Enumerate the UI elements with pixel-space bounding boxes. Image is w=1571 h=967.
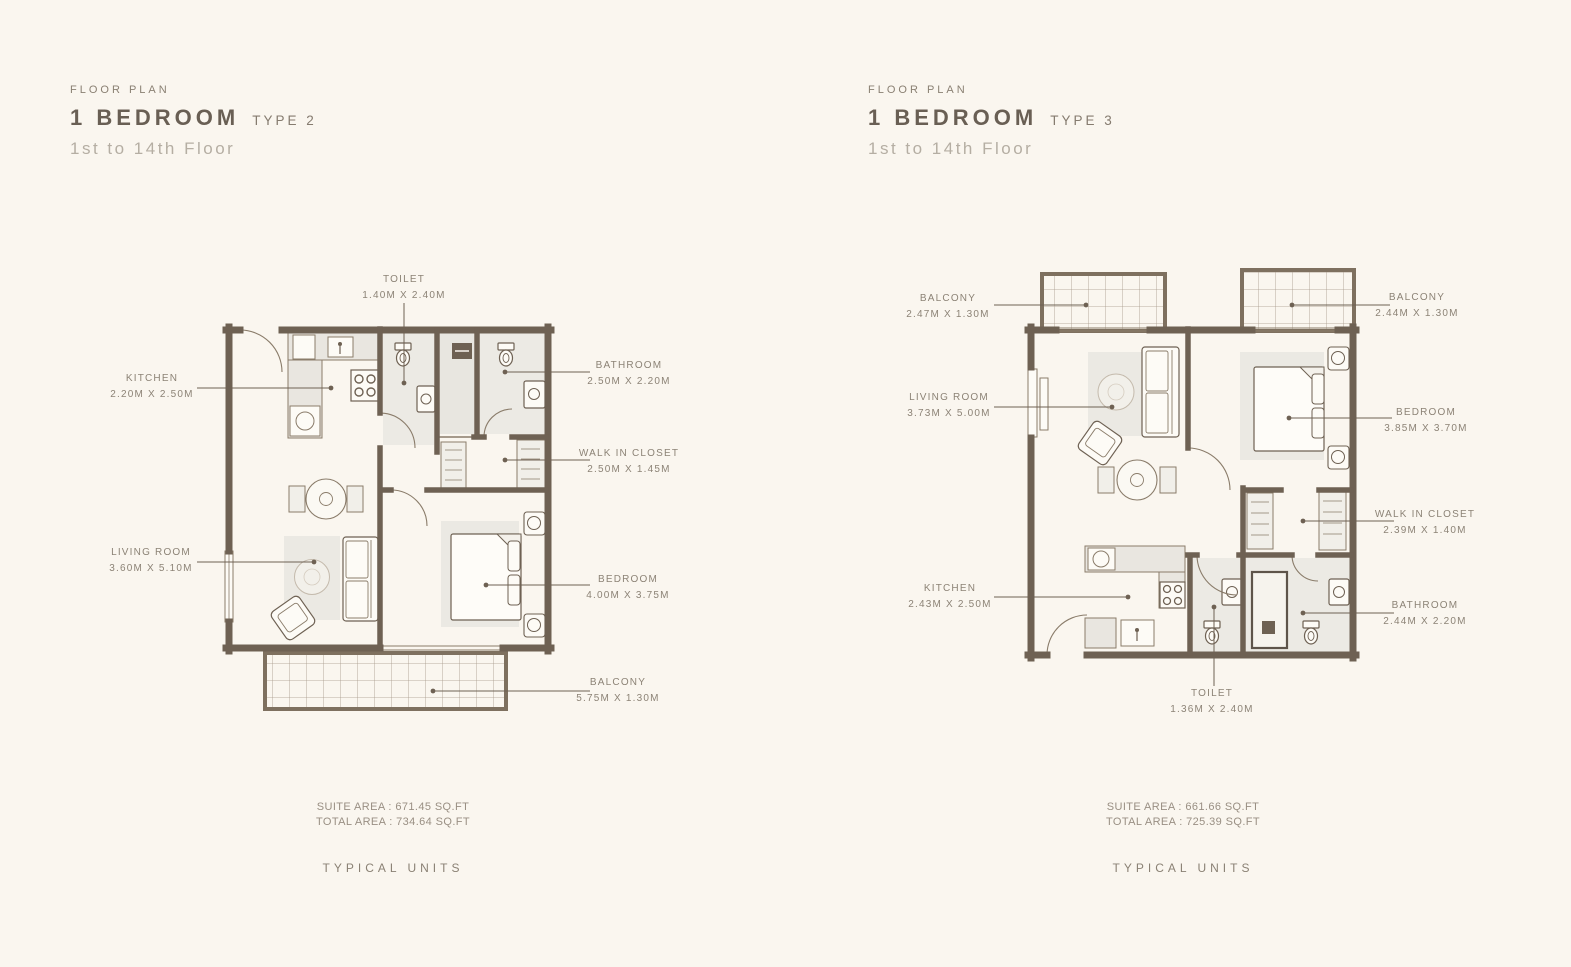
room-dims: 5.75M X 1.30M — [538, 691, 698, 707]
label-kitchen-type2: KITCHEN 2.20M X 2.50M — [72, 371, 232, 403]
room-dims: 3.60M X 5.10M — [71, 561, 231, 577]
room-name: WALK IN CLOSET — [1345, 507, 1505, 523]
plan-title: 1 BEDROOM — [70, 105, 239, 131]
room-name: TOILET — [1132, 686, 1292, 702]
label-balcony-right-type3: BALCONY 2.44M X 1.30M — [1337, 290, 1497, 322]
room-name: BATHROOM — [549, 358, 709, 374]
eyebrow-floor-plan: FLOOR PLAN — [868, 84, 1288, 96]
label-toilet-type3: TOILET 1.36M X 2.40M — [1132, 686, 1292, 718]
area-summary-type2: SUITE AREA : 671.45 SQ.FT TOTAL AREA : 7… — [273, 800, 513, 830]
total-area: TOTAL AREA : 725.39 SQ.FT — [1063, 815, 1303, 830]
room-name: BALCONY — [1337, 290, 1497, 306]
label-walk-in-closet-type2: WALK IN CLOSET 2.50M X 1.45M — [549, 446, 709, 478]
room-name: TOILET — [324, 272, 484, 288]
label-bathroom-type2: BATHROOM 2.50M X 2.20M — [549, 358, 709, 390]
label-bedroom-type2: BEDROOM 4.00M X 3.75M — [548, 572, 708, 604]
room-dims: 4.00M X 3.75M — [548, 588, 708, 604]
room-dims: 2.47M X 1.30M — [868, 307, 1028, 323]
room-dims: 2.43M X 2.50M — [870, 597, 1030, 613]
label-bathroom-type3: BATHROOM 2.44M X 2.20M — [1345, 598, 1505, 630]
floor-range: 1st to 14th Floor — [70, 139, 490, 159]
room-dims: 2.50M X 2.20M — [549, 374, 709, 390]
plan-type: TYPE 2 — [252, 113, 317, 128]
area-summary-type3: SUITE AREA : 661.66 SQ.FT TOTAL AREA : 7… — [1063, 800, 1303, 830]
room-name: BALCONY — [868, 291, 1028, 307]
eyebrow-floor-plan: FLOOR PLAN — [70, 84, 490, 96]
room-dims: 2.39M X 1.40M — [1345, 523, 1505, 539]
room-dims: 2.20M X 2.50M — [72, 387, 232, 403]
total-area: TOTAL AREA : 734.64 SQ.FT — [273, 815, 513, 830]
footer-typical-units-type3: TYPICAL UNITS — [1063, 861, 1303, 875]
room-name: LIVING ROOM — [869, 390, 1029, 406]
floor-plan-page: { "colors": { "background": "#FAF6EF", "… — [0, 0, 1571, 967]
suite-area: SUITE AREA : 661.66 SQ.FT — [1063, 800, 1303, 815]
label-balcony-left-type3: BALCONY 2.47M X 1.30M — [868, 291, 1028, 323]
room-name: BEDROOM — [1346, 405, 1506, 421]
room-dims: 1.40M X 2.40M — [324, 288, 484, 304]
plan-type: TYPE 3 — [1050, 113, 1115, 128]
header-type3: FLOOR PLAN 1 BEDROOM TYPE 3 1st to 14th … — [868, 84, 1288, 159]
label-living-room-type3: LIVING ROOM 3.73M X 5.00M — [869, 390, 1029, 422]
room-name: KITCHEN — [870, 581, 1030, 597]
label-toilet-type2: TOILET 1.40M X 2.40M — [324, 272, 484, 304]
room-name: LIVING ROOM — [71, 545, 231, 561]
label-living-room-type2: LIVING ROOM 3.60M X 5.10M — [71, 545, 231, 577]
suite-area: SUITE AREA : 671.45 SQ.FT — [273, 800, 513, 815]
label-kitchen-type3: KITCHEN 2.43M X 2.50M — [870, 581, 1030, 613]
room-dims: 2.44M X 1.30M — [1337, 306, 1497, 322]
room-dims: 1.36M X 2.40M — [1132, 702, 1292, 718]
floor-plan-type3-drawing — [994, 270, 1394, 686]
room-dims: 3.73M X 5.00M — [869, 406, 1029, 422]
room-name: KITCHEN — [72, 371, 232, 387]
room-name: BALCONY — [538, 675, 698, 691]
room-name: BATHROOM — [1345, 598, 1505, 614]
header-type2: FLOOR PLAN 1 BEDROOM TYPE 2 1st to 14th … — [70, 84, 490, 159]
room-dims: 2.44M X 2.20M — [1345, 614, 1505, 630]
room-dims: 3.85M X 3.70M — [1346, 421, 1506, 437]
room-dims: 2.50M X 1.45M — [549, 462, 709, 478]
footer-typical-units-type2: TYPICAL UNITS — [273, 861, 513, 875]
floor-plan-type2-drawing — [197, 303, 590, 709]
room-name: WALK IN CLOSET — [549, 446, 709, 462]
label-balcony-type2: BALCONY 5.75M X 1.30M — [538, 675, 698, 707]
plan-title: 1 BEDROOM — [868, 105, 1037, 131]
label-walk-in-closet-type3: WALK IN CLOSET 2.39M X 1.40M — [1345, 507, 1505, 539]
room-name: BEDROOM — [548, 572, 708, 588]
floor-range: 1st to 14th Floor — [868, 139, 1288, 159]
label-bedroom-type3: BEDROOM 3.85M X 3.70M — [1346, 405, 1506, 437]
